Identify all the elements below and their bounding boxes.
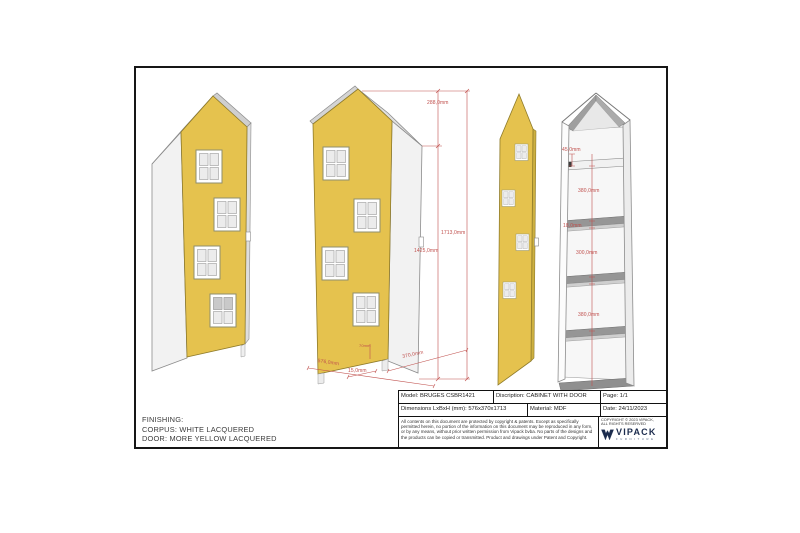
- window: [322, 247, 348, 280]
- window-gray-pane: [224, 298, 233, 310]
- dim-middle-compartment: 300,0mm: [576, 251, 598, 256]
- logo-texts: VIPACK FURNITURE: [616, 428, 657, 440]
- dim-plinth: 70mm: [359, 344, 371, 348]
- window-gray-pane: [214, 298, 223, 310]
- date-cell: Date: 24/11/2023: [601, 404, 666, 416]
- door-window: [516, 234, 529, 251]
- copyright-cell: COPYRIGHT © 2023 VIPACK, ALL RIGHTS RESE…: [599, 417, 666, 447]
- material-cell: Material: MDF: [528, 404, 601, 416]
- wall-bracket: [419, 237, 424, 247]
- drawing-sheet: 288,0mm 1713,0mm 1425,0mm 370,0mm 576,0m…: [0, 0, 800, 533]
- foot-left: [318, 373, 324, 384]
- page-cell: Page: 1/1: [601, 391, 666, 403]
- legal-text: All contents on this document are protec…: [399, 417, 599, 447]
- window: [353, 293, 379, 326]
- dim-roof-height: 288,0mm: [427, 101, 449, 106]
- door-window: [503, 282, 516, 299]
- drawing-frame: 288,0mm 1713,0mm 1425,0mm 370,0mm 576,0m…: [134, 66, 668, 449]
- vipack-logo: VIPACK FURNITURE: [601, 428, 664, 440]
- dim-door-inset: 15,0mm: [348, 369, 367, 374]
- title-block-row-2: Dimensions LxBxH (mm): 576x370x1713 Mate…: [399, 404, 666, 417]
- view-open: [498, 93, 634, 391]
- dimensions-cell: Dimensions LxBxH (mm): 576x370x1713: [399, 404, 528, 416]
- window: [194, 246, 220, 279]
- logo-subtitle: FURNITURE: [616, 438, 657, 441]
- window: [323, 147, 349, 180]
- door-window: [515, 144, 528, 161]
- view-closed-left: [152, 93, 251, 371]
- window: [354, 199, 380, 232]
- window: [214, 198, 240, 231]
- side-panel: [388, 121, 422, 373]
- finishing-door: DOOR: MORE YELLOW LACQUERED: [142, 434, 277, 444]
- title-block-row-3: All contents on this document are protec…: [399, 417, 666, 447]
- view-closed-front: [310, 86, 424, 384]
- dim-door-height: 1425,0mm: [414, 249, 438, 254]
- copyright-line-2: ALL RIGHTS RESERVED: [601, 422, 664, 426]
- title-block: Model: BRUGES CSBR1421 Discription: CABI…: [398, 390, 666, 447]
- dim-total-height: 1713,0mm: [441, 231, 465, 236]
- door-handle: [246, 232, 251, 241]
- window: [196, 150, 222, 183]
- door-window: [502, 190, 515, 207]
- foot-right: [382, 359, 388, 371]
- foot-right: [241, 344, 245, 357]
- finishing-corpus: CORPUS: WHITE LACQUERED: [142, 425, 277, 435]
- finishing-title: FINISHING:: [142, 415, 277, 425]
- dim-bottom-compartment: 380,0mm: [578, 313, 600, 318]
- model-cell: Model: BRUGES CSBR1421: [399, 391, 494, 403]
- hinge-tab: [535, 238, 539, 246]
- title-block-row-1: Model: BRUGES CSBR1421 Discription: CABI…: [399, 391, 666, 404]
- finishing-notes: FINISHING: CORPUS: WHITE LACQUERED DOOR:…: [142, 415, 277, 444]
- dim-shelf-thickness: 18,0mm: [563, 224, 582, 229]
- description-cell: Discription: CABINET WITH DOOR: [494, 391, 601, 403]
- dim-top-compartment: 380,0mm: [578, 189, 600, 194]
- vipack-w-icon: [601, 429, 614, 441]
- dim-top-offset: 45,0mm: [562, 148, 581, 153]
